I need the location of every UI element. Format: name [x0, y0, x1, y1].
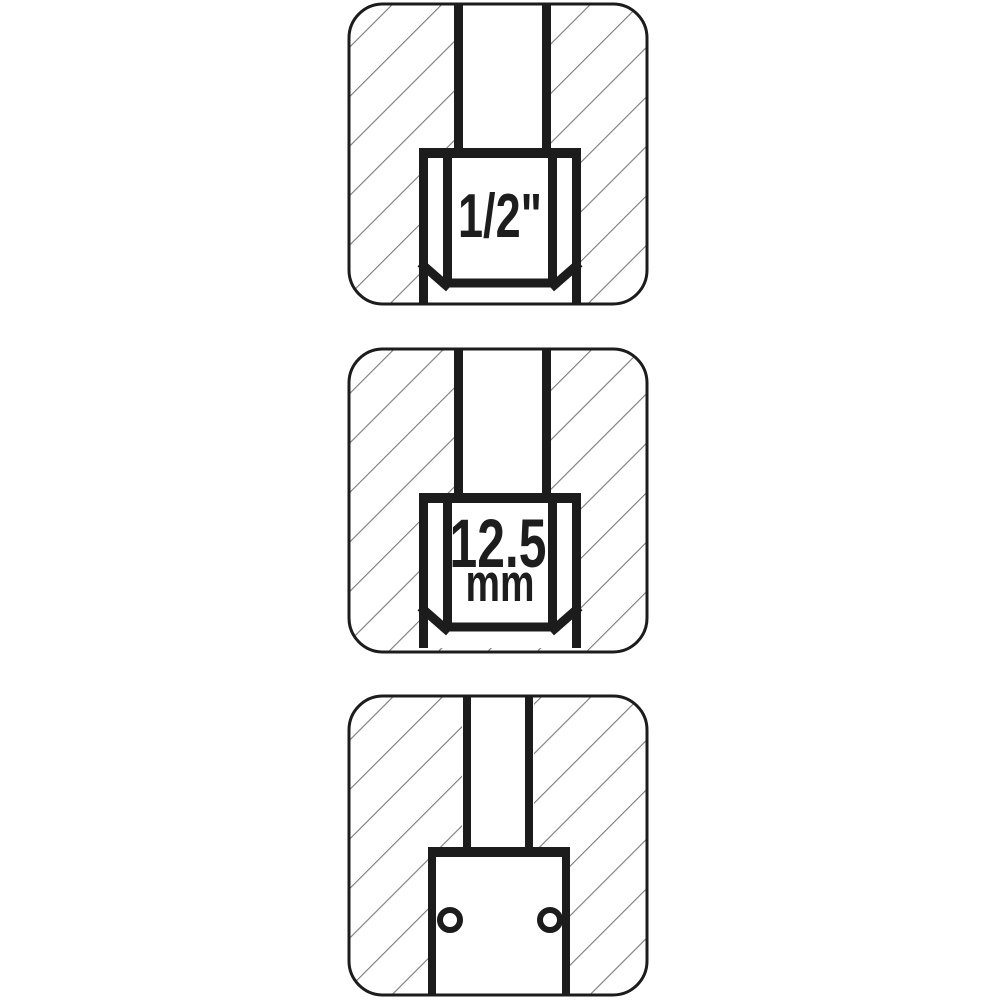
mm-unit-label: mm [466, 554, 535, 613]
drive-tang [454, 350, 551, 498]
panel-socket-holes-view [349, 696, 647, 995]
pin-hole-right-icon [540, 910, 560, 930]
panel-drive-size-mm: 12.5 mm [349, 349, 647, 652]
inch-size-label: 1/2" [458, 182, 542, 251]
socket-body [428, 847, 570, 994]
socket-drive-diagram: 1/2" 12.5 m [0, 0, 1000, 1000]
drive-tang [454, 5, 551, 155]
drive-tang [462, 697, 534, 852]
pin-hole-left-icon [440, 910, 460, 930]
panel-drive-size-inch: 1/2" [349, 4, 647, 304]
diagram-stage: 1/2" 12.5 m [0, 0, 1000, 1000]
